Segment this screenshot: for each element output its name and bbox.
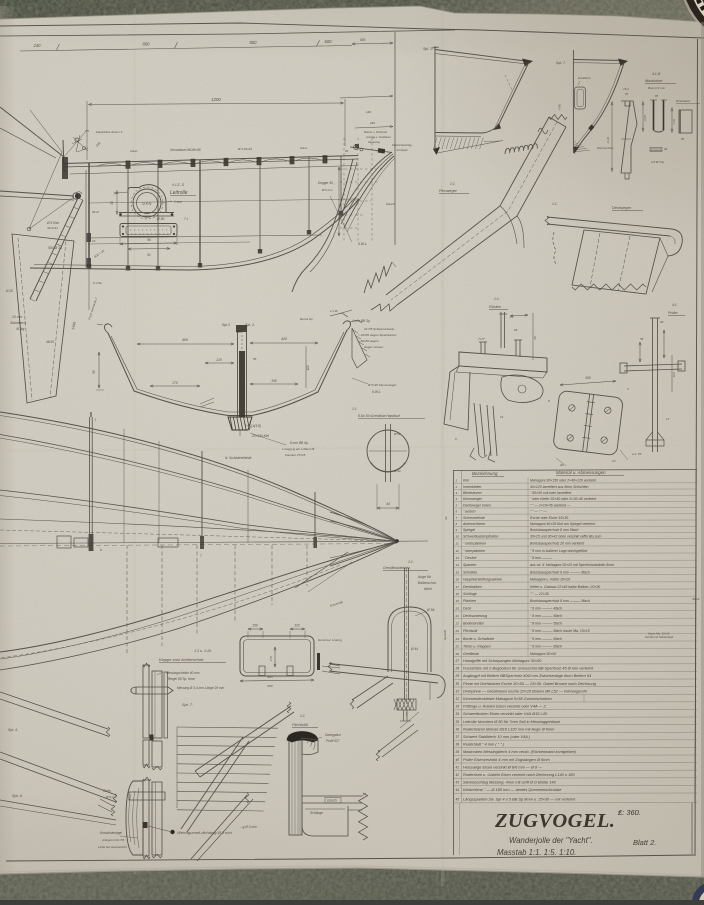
svg-text:1:1.: 1:1. xyxy=(552,202,558,206)
svg-text:" " — ": " " — " " — xyxy=(530,510,547,514)
svg-text:Blatt 2.: Blatt 2. xyxy=(633,838,656,847)
svg-text:7×77: 7×77 xyxy=(478,337,485,341)
svg-text:28,: 28, xyxy=(344,149,349,153)
svg-text:2,3/4: 2,3/4 xyxy=(643,115,647,122)
svg-text:28: 28 xyxy=(455,667,460,671)
svg-text:Poller: Poller xyxy=(668,311,678,315)
svg-text:240: 240 xyxy=(369,121,375,125)
svg-text:aus ca. 6' Mahagoni 20×20 mit: aus ca. 6' Mahagoni 20×20 mit Sperrholzw… xyxy=(530,563,614,567)
svg-text:N. 5a Abdeckleiste: N. 5a Abdeckleiste xyxy=(225,456,252,460)
svg-text:Dwingplast: Dwingplast xyxy=(325,733,341,737)
svg-text:20: 20 xyxy=(455,606,460,610)
svg-text:1:1 u. 1:10.: 1:1 u. 1:10. xyxy=(194,649,212,653)
svg-text:Bootsbausperrholz 20 mm verle: Bootsbausperrholz 20 mm verleimt xyxy=(530,542,585,546)
svg-text:Spt. 7.: Spt. 7. xyxy=(182,703,193,707)
svg-text:58: 58 xyxy=(640,337,644,341)
svg-text:Bootsbausperrholz 6 mm ——— 5f: Bootsbausperrholz 6 mm ——— 5fach xyxy=(530,570,590,574)
svg-text:34: 34 xyxy=(456,712,460,716)
svg-text:Mahagoni 30×50: Mahagoni 30×50 xyxy=(530,652,556,656)
svg-text:91: 91 xyxy=(147,253,151,257)
svg-text:" 6 mm ——— 4fach: " 6 mm ——— 4fach xyxy=(530,606,562,610)
svg-text:Handgriffe mit Schotpangen M: Handgriffe mit Schotpangen Mahagoni 30×5… xyxy=(463,658,542,663)
svg-text:Ø 4 40×10: Ø 4 40×10 xyxy=(237,147,252,151)
svg-text:1:1.: 1:1. xyxy=(450,182,456,186)
svg-text:1:1: 1:1 xyxy=(300,714,305,718)
svg-text:Strammbeschlag: Strammbeschlag xyxy=(392,143,412,147)
svg-text:" 8 mm in äußerer Lage d: " 8 mm in äußerer Lage durchgeführt xyxy=(530,549,588,553)
svg-text:Mastnoben Messin: Mastnoben Messingblech 4 mm verzb. (Rück… xyxy=(463,749,577,754)
svg-text:Klappe zum Achterschott: Klappe zum Achterschott xyxy=(159,657,204,662)
svg-text:Kiefer u. Gabaun 22×45 halbe: Kiefer u. Gabaun 22×45 halbe Balken: 20×… xyxy=(530,585,600,589)
svg-text:1 mm: 1 mm xyxy=(174,200,182,204)
svg-text:1/5 Ø Top: 1/5 Ø Top xyxy=(651,160,664,164)
svg-text:Ruderblatt ": Ruderblatt " 4 mm ( " " ) xyxy=(463,742,505,747)
svg-text:Pinnweger: Pinnweger xyxy=(439,189,458,193)
svg-text:44: 44 xyxy=(386,502,390,506)
svg-text:nochlag u. Fockbaum: nochlag u. Fockbaum xyxy=(366,135,392,139)
svg-text:Brennt 9 mm: Brennt 9 mm xyxy=(648,86,666,90)
svg-text:ZUGVOGEL.: ZUGVOGEL. xyxy=(494,810,615,832)
svg-text:33: 33 xyxy=(456,705,460,709)
svg-text:Sternbeschlag Messin: Sternbeschlag Messing. 4mm mit Griff Ø D… xyxy=(463,780,557,785)
svg-text:Anlegomi NL×55: Anlegomi NL×55 xyxy=(101,838,125,842)
svg-text:85: 85 xyxy=(625,92,629,96)
svg-text:17: 17 xyxy=(666,417,670,421)
svg-text:Augbogpf mit Beilern BBSperr: Augbogpf mit Beilern BBSperrholz 40Ø mm … xyxy=(462,673,592,678)
svg-text:Spt. 6.: Spt. 6. xyxy=(12,794,23,798)
svg-text:45: 45 xyxy=(456,798,460,802)
svg-text:wegen Jansen: wegen Jansen xyxy=(364,345,384,349)
svg-text:Herauslug: Herauslug xyxy=(368,140,380,144)
svg-text:41: 41 xyxy=(456,765,460,769)
svg-text:2: 2 xyxy=(455,485,458,489)
svg-text:10: 10 xyxy=(92,239,96,243)
svg-text:15 mm: 15 mm xyxy=(12,315,23,319)
svg-text:8 mm BB Sp.: 8 mm BB Sp. xyxy=(290,441,309,445)
svg-text:23: 23 xyxy=(455,629,460,633)
svg-text:" 80×50 voll oder lamellie: " 80×50 voll oder lamelliert xyxy=(530,491,572,495)
svg-text:240: 240 xyxy=(33,43,42,48)
svg-text:42: 42 xyxy=(456,773,460,777)
svg-text:Esche oder Eiche 15×30: Esche oder Eiche 15×30 xyxy=(530,516,568,520)
svg-text:Bodenbretter: Bodenbretter xyxy=(463,622,485,626)
svg-text:85: 85 xyxy=(681,137,685,141)
svg-text:14: 14 xyxy=(500,415,504,419)
svg-text:Innenkielen: Innenkielen xyxy=(463,485,481,489)
svg-text:25: 25 xyxy=(455,644,460,648)
svg-text:1:1.: 1:1. xyxy=(494,297,500,301)
svg-text:12: 12 xyxy=(456,549,460,553)
svg-text:7,5: 7,5 xyxy=(85,129,89,133)
svg-text:Schwert Stah: Schwert Stahlblech 10 mm (oder V4A ) xyxy=(463,734,531,739)
svg-text:...g Ø 3 mm: ...g Ø 3 mm xyxy=(240,825,257,829)
svg-text:Handloch: Handloch xyxy=(578,76,591,80)
svg-text:110: 110 xyxy=(294,624,299,628)
svg-text:29: 29 xyxy=(455,674,460,678)
svg-text:18: 18 xyxy=(456,592,460,596)
svg-text:Rammschein: Rammschein xyxy=(597,146,614,150)
svg-text:Mahagoni 40×35 fünf am Spiege: Mahagoni 40×35 fünf am Spiegel verleimt xyxy=(530,522,596,526)
svg-text:Ø 20: Ø 20 xyxy=(5,289,13,293)
svg-text:Kielschiene ": Kielschiene " — Ø 180 mm — bereits Quers… xyxy=(463,787,562,792)
svg-text:11: 11 xyxy=(456,542,459,546)
svg-text:Gosch: Gosch xyxy=(327,799,337,803)
svg-text:Kiel: Kiel xyxy=(463,479,469,483)
svg-text:Messing Ø 3-4 mm Länge 29 mm: Messing Ø 3-4 mm Länge 29 mm xyxy=(177,686,225,690)
svg-text:Rückwand: Rückwand xyxy=(676,99,690,103)
svg-text:> 20×80 wegen Spachkarten: > 20×80 wegen Spachkarten xyxy=(358,333,397,337)
svg-text:500 Ø 16: 500 Ø 16 xyxy=(48,246,62,250)
svg-text:Fussstütze mit 2 Bugbolzen f: Fussstütze mit 2 Bugbolzen für Grossscho… xyxy=(463,666,594,671)
svg-text:17: 17 xyxy=(456,585,460,589)
svg-text:Ruderbolzen Bronze: Ruderbolzen Bronze Ø16 L320 mm mit Auge … xyxy=(463,726,555,731)
svg-text:Spt. 2.: Spt. 2. xyxy=(423,47,433,51)
svg-text:Ø 54: Ø 54 xyxy=(393,432,401,436)
svg-text:mit clipper: mit clipper xyxy=(396,148,408,152)
svg-text:Kimmweger: Kimmweger xyxy=(463,497,483,501)
svg-text:140: 140 xyxy=(366,110,371,114)
svg-text:Profil 527: Profil 527 xyxy=(326,739,340,743)
svg-text:" Deckel: " Deckel xyxy=(463,556,476,560)
svg-text:600: 600 xyxy=(360,38,366,42)
svg-text:Maststütze Anson 2: Maststütze Anson 2 xyxy=(96,130,123,134)
svg-text:Schotten: Schotten xyxy=(463,570,477,574)
svg-text:Messingscheibe 40 mm: Messingscheibe 40 mm xyxy=(166,671,200,675)
svg-text:210: 210 xyxy=(215,358,222,362)
svg-text:43: 43 xyxy=(456,781,460,785)
svg-text:" oberplanken: " oberplanken xyxy=(463,549,485,553)
svg-text:Plichtsüll: Plichtsüll xyxy=(292,722,308,727)
svg-text:400: 400 xyxy=(182,338,188,342)
svg-text:36: 36 xyxy=(456,727,460,731)
svg-text:40×120 lamelliert aus 6mm Sch: 40×120 lamelliert aus 6mm Schichten xyxy=(530,485,589,489)
svg-text:22: 22 xyxy=(455,622,460,626)
svg-text:35: 35 xyxy=(456,720,460,724)
svg-text:" 8 mm ——— 5fach: " 8 mm ——— 5fach xyxy=(530,614,562,618)
svg-text:Ø 54: Ø 54 xyxy=(426,608,434,612)
svg-text:15: 15 xyxy=(456,570,460,574)
svg-text:Decksunterzug: Decksunterzug xyxy=(463,614,487,618)
svg-text:44: 44 xyxy=(456,788,460,792)
svg-text:Deckweger innen: Deckweger innen xyxy=(463,503,491,507)
svg-text:7: 7 xyxy=(200,554,202,558)
svg-text:26: 26 xyxy=(455,652,460,656)
svg-text:Spt 3: Spt 3 xyxy=(222,323,230,327)
svg-text:1:1: 1:1 xyxy=(352,407,357,411)
svg-text:Kausten 27×25: Kausten 27×25 xyxy=(285,453,306,457)
svg-text:K.W.L.: K.W.L. xyxy=(358,242,368,246)
svg-text:Spanten: Spanten xyxy=(463,563,476,567)
svg-text:110: 110 xyxy=(306,365,310,370)
svg-text:Hauptversteifungswinkel: Hauptversteifungswinkel xyxy=(463,578,502,582)
svg-text:mt.: mt. xyxy=(444,516,448,520)
svg-text:Riegel 88 Sp. 6mm: Riegel 88 Sp. 6mm xyxy=(168,677,195,681)
svg-text:" außen: " außen xyxy=(463,510,475,514)
svg-text:Riclm: Riclm xyxy=(103,789,111,793)
svg-text:2.88: 2.88 xyxy=(557,104,562,111)
svg-text:10: 10 xyxy=(612,459,616,463)
svg-text:L Gugg tg am 1 Raum B: L Gugg tg am 1 Raum B xyxy=(282,447,314,451)
svg-text:Bootsbausperrholz 8 mm ——— 5f: Bootsbausperrholz 8 mm ——— 5fach xyxy=(530,599,590,603)
svg-text:Leifei auf wasserdicht: Leifei auf wasserdicht xyxy=(98,845,127,849)
svg-text:Deck: Deck xyxy=(463,606,471,610)
svg-text:Anton: Anton xyxy=(299,146,308,150)
svg-text:" 8 mm ———: " 8 mm ——— xyxy=(530,556,553,560)
svg-text:Blindsteven: Blindsteven xyxy=(463,491,482,495)
svg-text:Greilleiste: Greilleiste xyxy=(463,652,479,656)
svg-text:1:1.: 1:1. xyxy=(408,560,414,564)
svg-text:Grossbaum MO/8×55: Grossbaum MO/8×55 xyxy=(170,148,201,152)
svg-text:> 80×80 wegen: > 80×80 wegen xyxy=(358,339,379,343)
svg-text:" 8 mm ——— 5fach: " 8 mm ——— 5fach xyxy=(530,622,562,626)
svg-text:" 6 mm ——— 5fach: " 6 mm ——— 5fach xyxy=(530,637,562,641)
svg-text:360: 360 xyxy=(585,376,591,380)
svg-text:V-I.Z.-S: V-I.Z.-S xyxy=(172,183,185,187)
svg-text:Auge für: Auge für xyxy=(417,575,432,579)
svg-text:19: 19 xyxy=(456,599,460,603)
svg-text:" unterplanken: " unterplanken xyxy=(463,542,486,546)
svg-text:" " — 2×10×45 ve: " " — 2×10×45 verleimt — xyxy=(530,503,571,507)
svg-text:30×15 und 30×42 oben verzinkt: 30×15 und 30×42 oben verzinkt raffin Bis… xyxy=(530,534,601,538)
svg-text:4:1.: 4:1. xyxy=(672,303,678,307)
svg-text:Schrittl mit Ölattenplatt: Schrittl mit Ölattenplatt xyxy=(645,635,673,639)
svg-text:7 L: 7 L xyxy=(184,217,189,221)
svg-text:Heissange Eisen: Heissange Eisen verzinkt Ø 8/6 mm — Ø 8 … xyxy=(463,764,542,769)
svg-text:Gummi-d. Listung: Gummi-d. Listung xyxy=(318,638,342,642)
svg-text:Planken: Planken xyxy=(463,599,476,603)
svg-text:31: 31 xyxy=(456,689,460,693)
svg-text:14: 14 xyxy=(456,563,460,567)
svg-text:Kimmendeckleiste Mahagoni: Kimmendeckleiste Mahagoni 5×58 Gummische… xyxy=(463,696,552,701)
svg-text:Drehpinne — Grebbolzen Esche: Drehpinne — Grebbolzen Esche 20×20 Bolze… xyxy=(463,688,588,693)
svg-text:Masstab 1:1. 1:5. 1:10.: Masstab 1:1. 1:5. 1:10. xyxy=(497,848,576,857)
svg-text:K.W.L.: K.W.L. xyxy=(372,390,382,394)
svg-text:Ø 50: Ø 50 xyxy=(156,217,164,221)
svg-text:Bezeichnung: Bezeichnung xyxy=(472,471,498,476)
svg-text:38: 38 xyxy=(456,743,460,747)
svg-text:b: b xyxy=(100,548,102,552)
svg-text:15,2: 15,2 xyxy=(623,87,629,91)
svg-text:16: 16 xyxy=(456,578,460,582)
svg-text:150: 150 xyxy=(252,624,258,628)
svg-text:4:1 Ø: 4:1 Ø xyxy=(652,72,661,76)
svg-text:110: 110 xyxy=(672,372,676,377)
svg-text:13: 13 xyxy=(456,556,460,560)
svg-text:Leitrolle Nov: Leitrolle Novotext Ø 80 für 7mm Seil in … xyxy=(463,719,561,724)
svg-text:30: 30 xyxy=(110,201,114,205)
svg-text:bleck: bleck xyxy=(424,587,432,591)
svg-text:Türen u. Klappen: Türen u. Klappen xyxy=(463,644,491,648)
svg-text:46: 46 xyxy=(664,147,668,151)
svg-text:Spiegel: Spiegel xyxy=(463,528,475,532)
svg-text:Dogger 40,: Dogger 40, xyxy=(318,181,334,185)
svg-text:Plichtsüll: Plichtsüll xyxy=(463,629,477,633)
svg-text:Grevillholzleisten: Grevillholzleisten xyxy=(383,566,410,570)
svg-text:32: 32 xyxy=(456,697,460,701)
svg-text:Sp.Rohr: Sp.Rohr xyxy=(443,629,447,640)
svg-text:Anton: Anton xyxy=(129,149,138,153)
svg-text:84: 84 xyxy=(514,328,518,332)
svg-text:20×130 Kiel: 20×130 Kiel xyxy=(251,434,269,438)
svg-text:800: 800 xyxy=(250,40,258,45)
svg-text:Wanderjolle der "Yacht".: Wanderjolle der "Yacht". xyxy=(509,836,593,845)
svg-text:600: 600 xyxy=(325,39,333,44)
svg-text:Mastkoker: Mastkoker xyxy=(645,79,663,83)
svg-text:7 1/2: 7 1/2 xyxy=(672,119,676,125)
svg-text:Ballenschot-: Ballenschot- xyxy=(418,581,438,585)
svg-text:95: 95 xyxy=(92,370,96,374)
svg-text:270: 270 xyxy=(171,381,178,385)
svg-text:85: 85 xyxy=(253,357,257,361)
svg-text:Deckbalken: Deckbalken xyxy=(463,585,482,589)
svg-text:Mahagoni u. Kiefer 20×20: Mahagoni u. Kiefer 20×20 xyxy=(530,578,570,582)
svg-text:Ø 5×45 Klemmweger: Ø 5×45 Klemmweger xyxy=(367,383,397,387)
svg-text:Rema Sp: Rema Sp xyxy=(300,317,313,321)
svg-text:800: 800 xyxy=(143,42,151,47)
svg-text:4 mm BB Sp: 4 mm BB Sp xyxy=(352,319,370,323)
svg-text:Püttinge u. Rüsten Eisen v: Püttinge u. Rüsten Eisen verzinkt oder V… xyxy=(463,704,547,709)
svg-text:85: 85 xyxy=(655,94,659,98)
svg-text:Ankerschbern: Ankerschbern xyxy=(462,522,485,526)
svg-text:Poller Ei: Poller Eisenverzinkt 4 mm mit Zugstangen… xyxy=(463,757,550,762)
svg-text:Ø 6 mm: Ø 6 mm xyxy=(321,188,333,192)
svg-text:Mahagoni 30×150 oder 2×40×: Mahagoni 30×150 oder 2×40×120 verleimt xyxy=(530,479,597,483)
svg-text:" oder Kiefer 20×40 oder 2×: " oder Kiefer 20×40 oder 2×10×40 verleim… xyxy=(530,497,597,501)
svg-text:Bootsbausperrholz 8 mm 5fach: Bootsbausperrholz 8 mm 5fach xyxy=(530,528,578,532)
svg-text:170: 170 xyxy=(269,656,273,661)
svg-text:Stahlblech: Stahlblech xyxy=(10,321,26,325)
svg-text:" " — 22×30: " " — 22×30 xyxy=(530,592,549,596)
svg-text:Rüsten: Rüsten xyxy=(489,305,501,309)
svg-text:10: 10 xyxy=(456,534,460,538)
svg-text:Ø 8 mm: Ø 8 mm xyxy=(105,795,117,799)
svg-text:Ø 44: Ø 44 xyxy=(393,469,401,473)
svg-text:45: 45 xyxy=(533,336,537,340)
svg-text:96: 96 xyxy=(147,238,151,242)
svg-text:40: 40 xyxy=(456,758,460,762)
svg-text:Spt. 4.: Spt. 4. xyxy=(8,728,18,732)
svg-text:90: 90 xyxy=(660,320,664,324)
svg-text:46/10: 46/10 xyxy=(46,340,54,344)
svg-text:45+8: 45+8 xyxy=(92,210,99,214)
svg-text:420: 420 xyxy=(281,337,287,341)
svg-text:a 4. 55: a 4. 55 xyxy=(632,452,642,456)
svg-text:" 8 mm ——— 5fach Kaut: " 8 mm ——— 5fach Kaute Ma. 15×15 xyxy=(530,629,590,633)
svg-text:Leitrolle: Leitrolle xyxy=(170,190,188,196)
svg-text:Maurer u. Schlosser: Maurer u. Schlosser xyxy=(364,130,387,134)
svg-text:883: 883 xyxy=(267,675,273,679)
svg-text:₤: 360.: ₤: 360. xyxy=(617,808,641,817)
svg-text:Gauch: Gauch xyxy=(386,202,395,206)
svg-text:Ø 5 Klim: Ø 5 Klim xyxy=(46,221,60,225)
svg-text:O.F.N.: O.F.N. xyxy=(142,202,152,206)
svg-text:Schwertkastenpfosten: Schwertkastenpfosten xyxy=(463,534,498,538)
svg-text:" 6 mm ——— 5fach: " 6 mm ——— 5fach xyxy=(530,644,562,648)
svg-text:30: 30 xyxy=(456,682,460,686)
svg-text:39/12: 39/12 xyxy=(692,597,700,601)
svg-text:27: 27 xyxy=(455,659,460,663)
svg-text:Spt. 7.: Spt. 7. xyxy=(556,61,566,65)
svg-text:Längsspanten 2w. Sp: Längsspanten 2w. Spt 4 u 5 BB Sp 8mm u. … xyxy=(463,797,576,802)
svg-text:41/4×41: 41/4×41 xyxy=(47,226,58,230)
svg-text:3 1/2: 3 1/2 xyxy=(606,136,610,143)
svg-text:39: 39 xyxy=(456,750,460,754)
svg-text:Deckweger: Deckweger xyxy=(612,206,632,210)
svg-text:Schlinge: Schlinge xyxy=(463,592,477,596)
svg-text:Schwertbolzen Eisen v: Schwertbolzen Eisen verzinkt oder V4A Ø1… xyxy=(463,711,548,716)
svg-text:6 V 8a: 6 V 8a xyxy=(93,281,102,285)
svg-text:Pinne mit Drehbolzen Esche 3: Pinne mit Drehbolzen Esche 30×50 — 25×35… xyxy=(463,681,597,686)
svg-text:Ø 44: Ø 44 xyxy=(410,647,418,651)
svg-text:Kreuzknieriegel: Kreuzknieriegel xyxy=(100,831,122,835)
svg-text:Borde u. Schwänke: Borde u. Schwänke xyxy=(463,637,494,641)
svg-text:890: 890 xyxy=(267,684,272,688)
svg-text:Scheuerleiste: Scheuerleiste xyxy=(463,516,485,520)
svg-text:8,5a 10×Grevillista Handlauf: 8,5a 10×Grevillista Handlauf xyxy=(358,414,401,418)
svg-text:24: 24 xyxy=(455,637,460,641)
svg-text:21: 21 xyxy=(455,614,460,618)
svg-text:31×55 Schwemmleiste: 31×55 Schwemmleiste xyxy=(364,327,395,331)
svg-text:1:1 Ø: 1:1 Ø xyxy=(330,309,338,313)
svg-text:Ruderösen u. Gabeln Eisen ver: Ruderösen u. Gabeln Eisen verzinkt nach … xyxy=(463,772,575,777)
svg-text:340: 340 xyxy=(271,379,277,383)
svg-text:Material u. Abmessungen: Material u. Abmessungen xyxy=(556,470,606,475)
svg-text:Schlinge: Schlinge xyxy=(310,811,323,815)
svg-text:37: 37 xyxy=(456,735,460,739)
svg-text:1200: 1200 xyxy=(211,97,221,102)
